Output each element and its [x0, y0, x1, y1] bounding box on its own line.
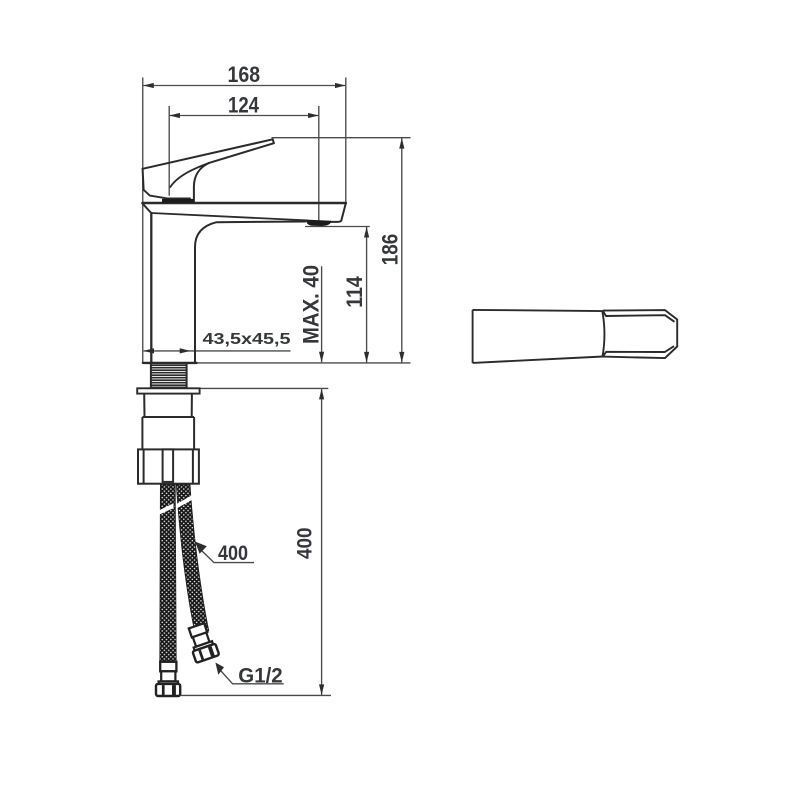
svg-text:MAX. 40: MAX. 40: [299, 265, 324, 344]
svg-text:G1/2: G1/2: [238, 664, 282, 688]
svg-text:124: 124: [228, 92, 259, 117]
svg-text:114: 114: [342, 276, 367, 308]
svg-text:43,5x45,5: 43,5x45,5: [203, 331, 291, 348]
svg-text:400: 400: [218, 541, 248, 565]
svg-text:168: 168: [228, 62, 261, 87]
svg-text:400: 400: [294, 527, 317, 559]
svg-text:186: 186: [378, 234, 403, 266]
